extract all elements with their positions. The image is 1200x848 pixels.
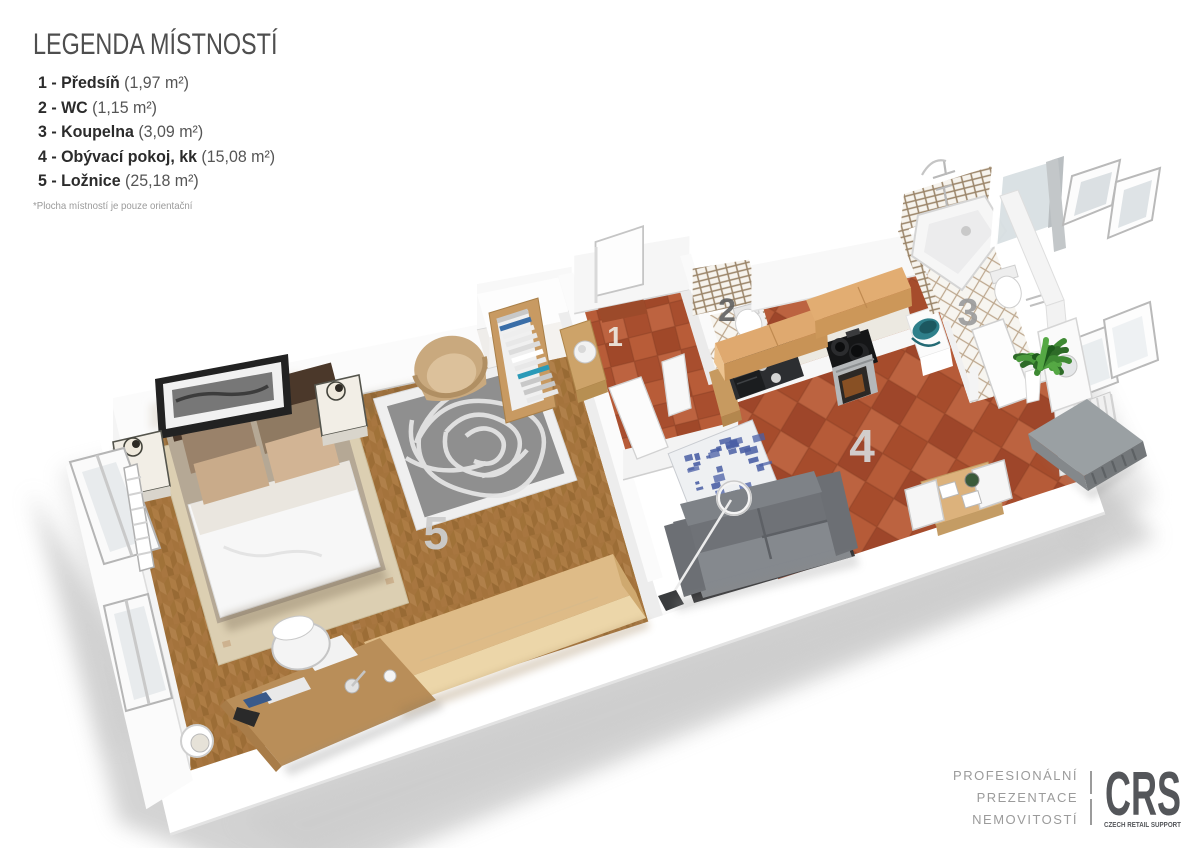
svg-text:5: 5: [423, 507, 449, 559]
svg-text:1: 1: [607, 321, 623, 352]
svg-text:CZECH RETAIL SUPPORT: CZECH RETAIL SUPPORT: [1104, 820, 1182, 829]
svg-text:4: 4: [849, 420, 875, 472]
svg-text:3: 3: [957, 292, 978, 334]
svg-text:2: 2: [718, 292, 736, 328]
